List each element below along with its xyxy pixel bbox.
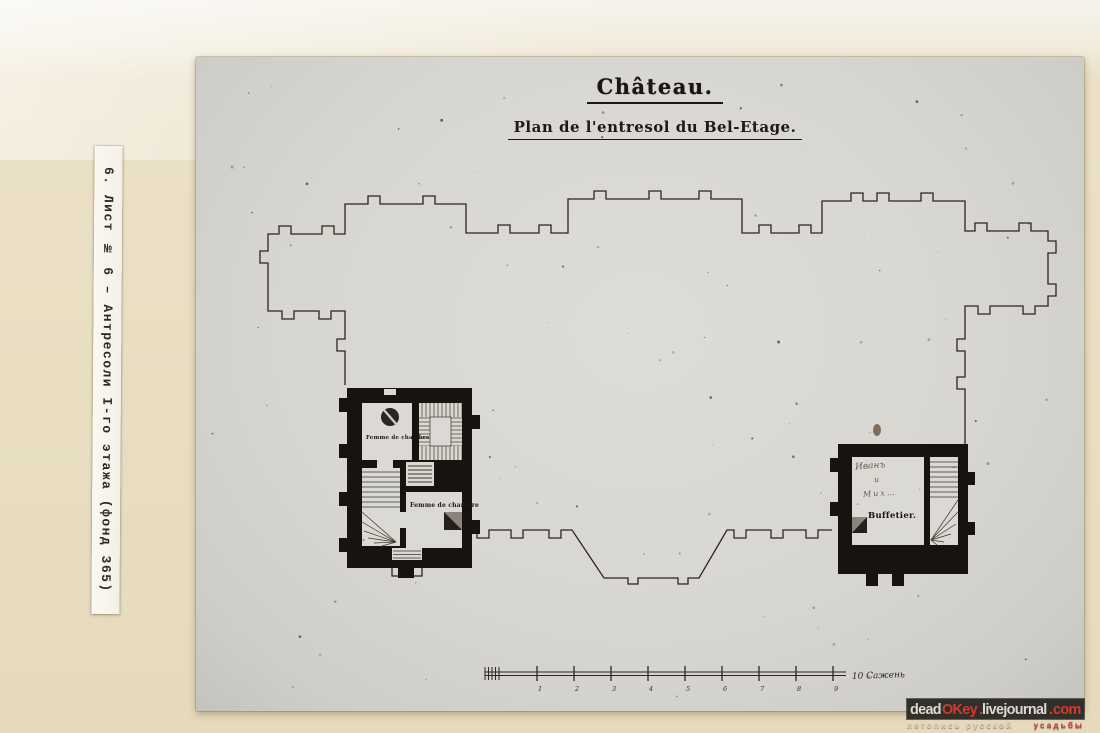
handwritten-note: ИванъиМих…: [855, 456, 928, 503]
watermark-domain: deadOKey.livejournal.com: [907, 699, 1084, 719]
archive-side-label-text: 6. Лист № 6 – Антресоли I-го этажа (фонд…: [98, 167, 116, 593]
watermark-tagline: летопись русскойусадьбы: [907, 721, 1084, 730]
photo-print: [196, 57, 1084, 711]
watermark: deadOKey.livejournal.com летопись русско…: [907, 699, 1084, 730]
drawing-title: Château.: [587, 74, 724, 104]
drawing-subtitle: Plan de l'entresol du Bel-Etage.: [508, 118, 803, 140]
archive-side-label: 6. Лист № 6 – Антресоли I-го этажа (фонд…: [91, 146, 122, 614]
album-page: { "album": { "side_label": "6. Лист № 6 …: [0, 0, 1100, 733]
